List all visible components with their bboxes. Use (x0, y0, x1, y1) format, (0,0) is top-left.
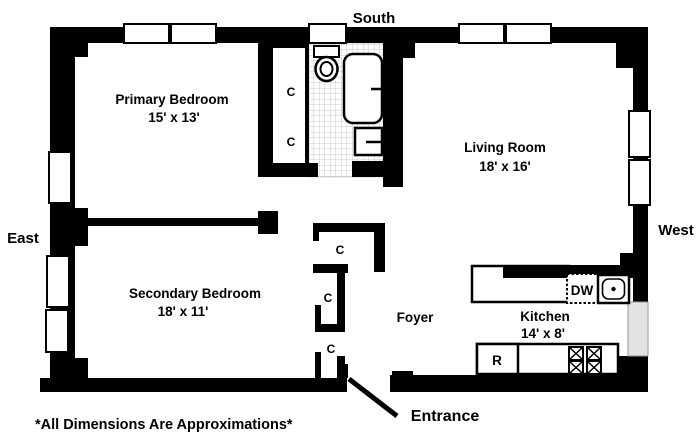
label-east: East (7, 230, 39, 247)
wall-step-left-mid (75, 208, 88, 246)
wall-closet2-left (315, 305, 321, 332)
wall-bottom-left (40, 378, 347, 392)
wall-step-top-left (75, 43, 88, 57)
wall-closet-bathroom-divider (305, 48, 309, 168)
wall-closet2-right (337, 264, 345, 332)
label-secondary-bedroom-dims: 18' x 11' (158, 304, 209, 319)
label-entrance: Entrance (411, 408, 480, 425)
wall-foyer-bump (392, 371, 413, 379)
wall-bathroom-bottom-left (268, 163, 318, 177)
window-top-3 (459, 24, 504, 43)
wall-bathroom-right-step (403, 43, 415, 58)
wall-bedroom-divider (75, 218, 261, 226)
floor-plan: South East West Primary Bedroom 15' x 13… (0, 0, 696, 438)
wall-bathroom-right (383, 43, 403, 187)
window-left-2 (47, 256, 69, 307)
wall-closet1-right (374, 223, 385, 272)
label-primary-bedroom-dims: 15' x 13' (148, 110, 199, 125)
wall-step-top-right (616, 43, 633, 68)
label-refrigerator: R (492, 353, 502, 368)
wall-bottom-right (390, 375, 648, 392)
label-secondary-bedroom: Secondary Bedroom (129, 286, 261, 301)
toilet-bowl-inner (321, 62, 333, 76)
window-left-3 (46, 310, 68, 352)
label-kitchen-dims: 14' x 8' (521, 326, 565, 341)
window-top-2 (171, 24, 216, 43)
floor-plan-svg: South East West Primary Bedroom 15' x 13… (0, 0, 696, 438)
label-closet-4: C (324, 291, 333, 305)
window-right-2 (629, 160, 650, 205)
label-dishwasher: DW (571, 283, 594, 298)
label-living-room-dims: 18' x 16' (479, 159, 530, 174)
window-right-1 (629, 111, 650, 157)
wall-closet3-left (315, 352, 321, 378)
kitchen-sink-drain-icon (611, 287, 615, 291)
label-foyer: Foyer (397, 310, 435, 325)
label-kitchen: Kitchen (520, 309, 570, 324)
label-south: South (353, 10, 396, 27)
window-bathroom (309, 24, 346, 43)
label-living-room: Living Room (464, 140, 546, 155)
window-top-4 (506, 24, 551, 43)
window-top-1 (124, 24, 169, 43)
label-closet-2: C (287, 135, 296, 149)
wall-primary-bedroom-right (258, 43, 273, 177)
label-west: West (658, 222, 694, 239)
label-closet-3: C (336, 243, 345, 257)
wall-closet-top (273, 43, 309, 48)
wall-entrance-jamb (341, 364, 348, 378)
toilet-tank (314, 46, 339, 57)
wall-closet1-left-stub (313, 223, 319, 241)
wall-bedroom-divider-jamb (258, 211, 278, 234)
label-closet-5: C (327, 342, 336, 356)
window-kitchen-recessed (628, 302, 648, 356)
wall-step-bottom-left (75, 358, 88, 378)
label-disclaimer: *All Dimensions Are Approximations* (35, 417, 293, 433)
entrance-door-swing (349, 379, 397, 416)
label-primary-bedroom: Primary Bedroom (115, 92, 228, 107)
label-closet-1: C (287, 85, 296, 99)
window-left-1 (49, 152, 71, 203)
